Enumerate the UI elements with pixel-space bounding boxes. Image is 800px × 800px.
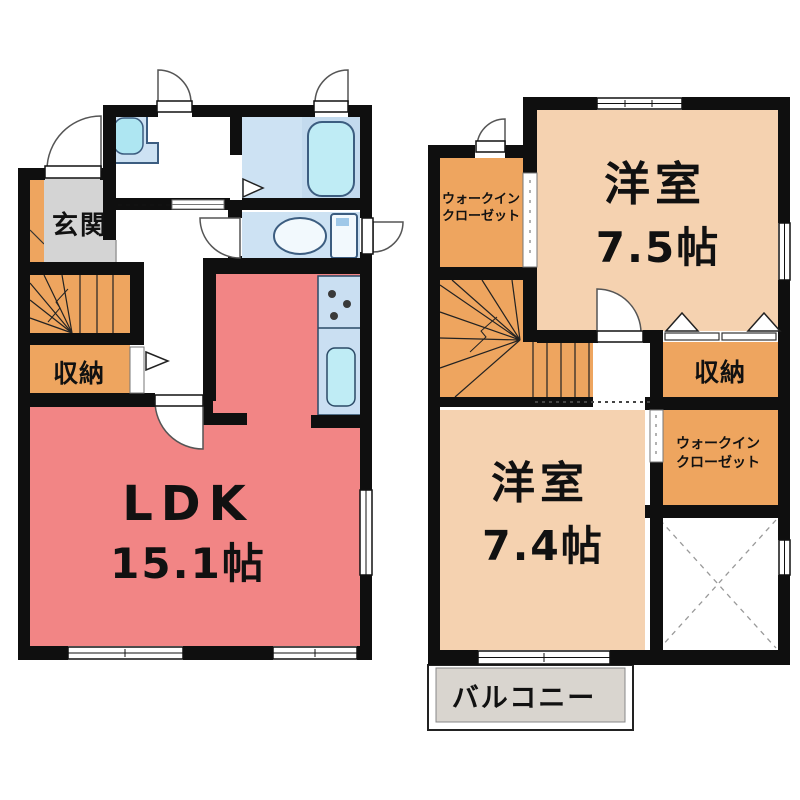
wic-top-door-leaf (476, 141, 505, 152)
bath-door-gap (230, 155, 242, 200)
door-arc-toilet-outer (373, 222, 403, 252)
toilet-outer-door-leaf (362, 218, 373, 254)
toilet-icon (274, 218, 326, 254)
entrance-door-leaf (45, 166, 101, 178)
bathroom-top-door-leaf (314, 101, 348, 112)
label-genkan: 玄関 (52, 210, 108, 241)
label-yoshitsu75-area: 7.5帖 (596, 223, 720, 272)
sink-basin-icon (114, 118, 143, 154)
room-yoshitsu-75 (537, 110, 778, 332)
bathtub-icon (308, 122, 354, 196)
entrance-porch-strip (30, 178, 44, 262)
floor1-plan: 玄関 収納 LDK 15.1帖 (18, 70, 403, 660)
label-wic-top-1: ウォークイン (442, 192, 520, 207)
toilet-button-icon (336, 218, 349, 226)
floorplan-drawing: 玄関 収納 LDK 15.1帖 (0, 0, 800, 800)
label-yoshitsu74: 洋室 (491, 458, 589, 509)
door-arc-entrance (47, 116, 101, 170)
label-ldk: LDK (122, 476, 254, 532)
yoshitsu75-door-leaf (597, 331, 643, 342)
floorplan-page: 玄関 収納 LDK 15.1帖 (0, 0, 800, 800)
label-balcony: バルコニー (452, 683, 596, 714)
door-arc-toilet (200, 218, 240, 258)
kitchen-unit (318, 276, 363, 415)
washroom-door-leaf (157, 101, 192, 112)
door-arc-washroom (158, 70, 191, 103)
storage-1f-door-leaf-icon (146, 352, 168, 370)
label-wic-right-1: ウォークイン (676, 436, 760, 452)
label-storage-1f: 収納 (53, 359, 105, 388)
void-area (658, 518, 778, 650)
floor2-plan: 洋室 7.5帖 ウォークイン クローゼット 収納 ウォークイン クローゼット 洋… (428, 97, 790, 730)
label-wic-top-2: クローゼット (442, 208, 520, 224)
door-arc-bathroom-top (315, 70, 348, 103)
label-yoshitsu75: 洋室 (604, 157, 706, 211)
label-wic-right-2: クローゼット (676, 454, 760, 471)
storage-1f-door (130, 347, 144, 393)
ldk-door-leaf (155, 395, 203, 406)
label-yoshitsu74-area: 7.4帖 (482, 522, 604, 570)
kitchen-sink-icon (327, 348, 355, 406)
label-ldk-area: 15.1帖 (110, 539, 266, 588)
label-storage-2f: 収納 (694, 358, 746, 387)
